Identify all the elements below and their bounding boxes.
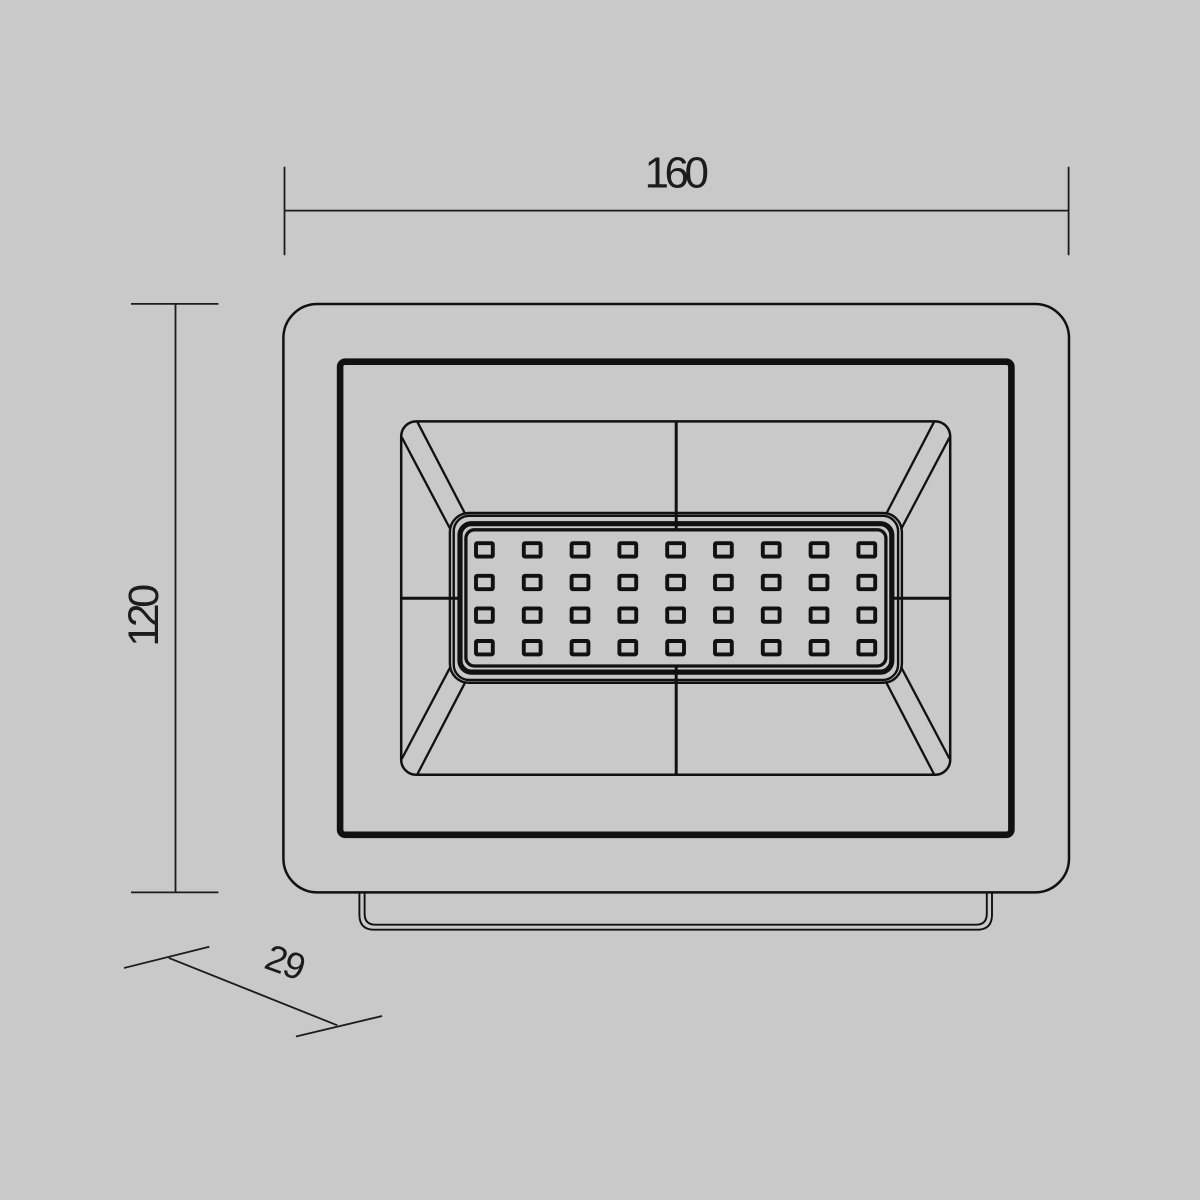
svg-text:160: 160 — [645, 149, 708, 198]
svg-text:120: 120 — [120, 585, 168, 647]
